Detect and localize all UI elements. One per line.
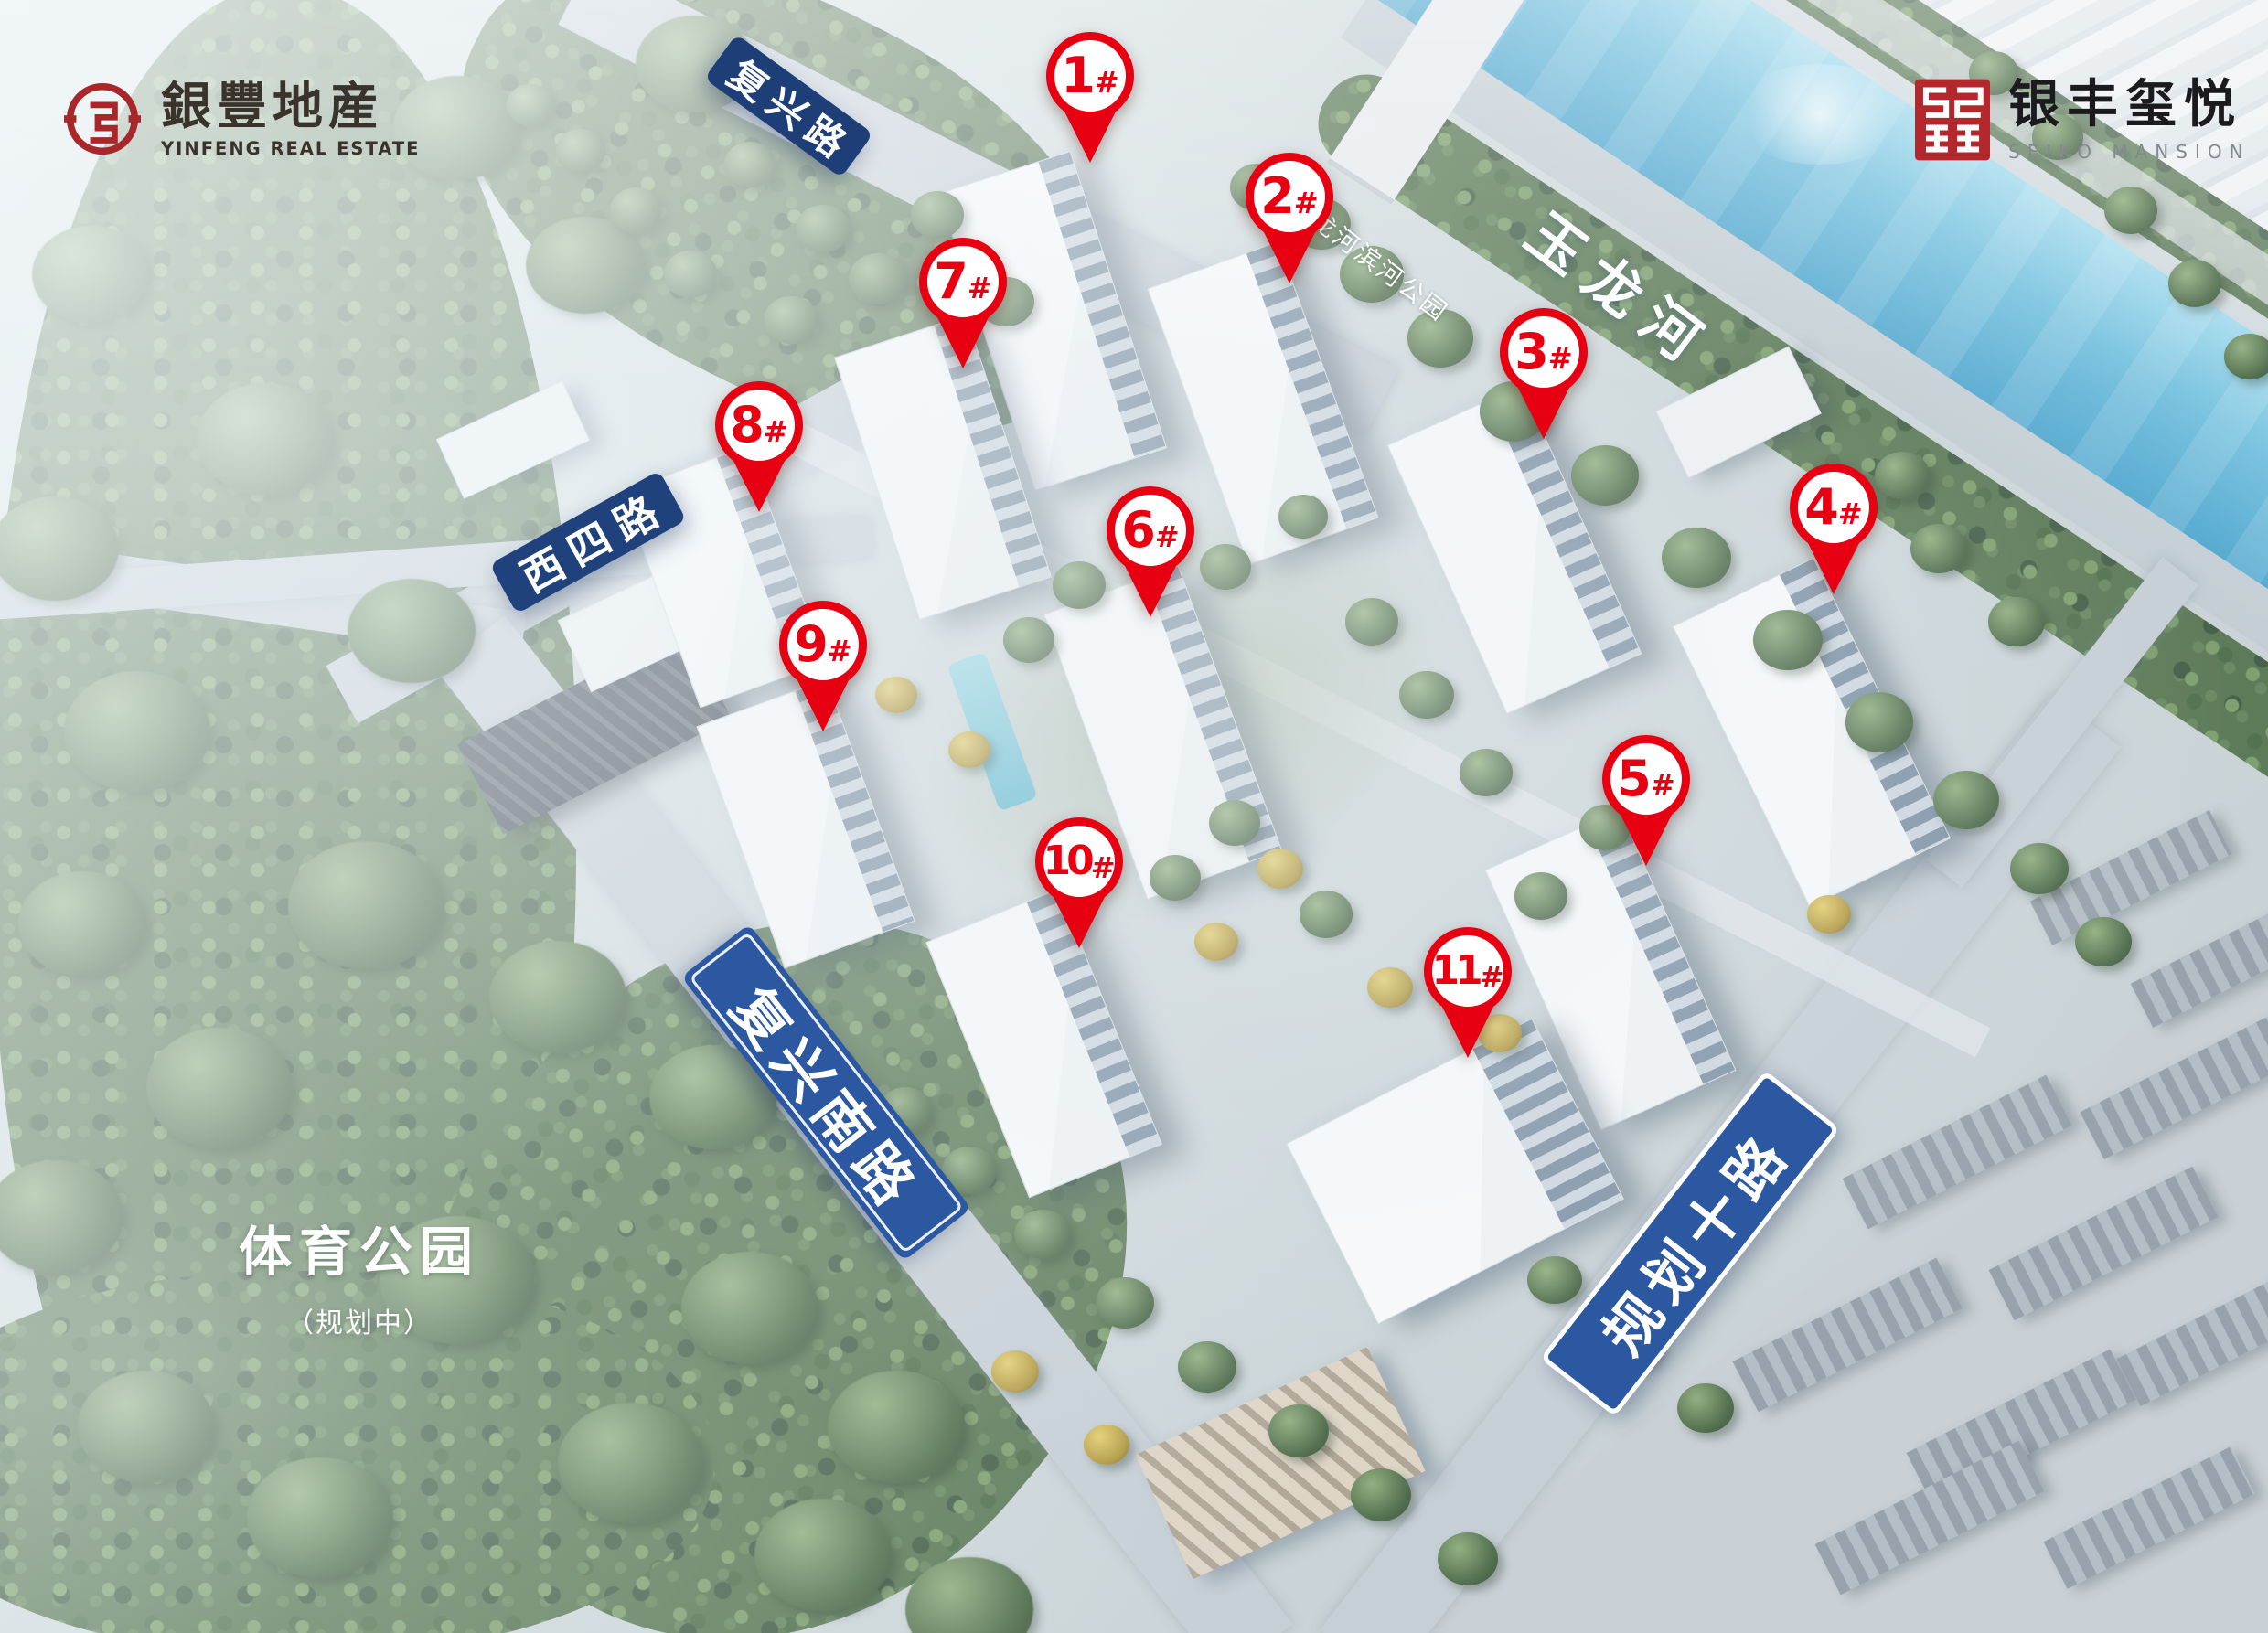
tree [1084, 1425, 1129, 1465]
tree [1053, 561, 1106, 608]
tree [875, 677, 917, 713]
tree [489, 941, 626, 1053]
tree [1014, 1210, 1071, 1260]
marker-hash: # [1155, 522, 1180, 551]
tree [1178, 1341, 1236, 1393]
tree [1438, 1532, 1498, 1585]
tree [64, 671, 210, 791]
sports-park-name: 体育公园 [227, 1209, 492, 1286]
location-pin-icon: 1# [1046, 32, 1134, 120]
tree [1096, 1277, 1154, 1329]
marker-hash: # [828, 636, 852, 666]
building-marker-8: 8# [715, 381, 803, 509]
location-pin-icon: 11# [1424, 927, 1512, 1015]
building-marker-1: 1# [1046, 32, 1134, 160]
tree [828, 1371, 965, 1483]
tree [1571, 445, 1639, 505]
sports-park-label: 体育公园 （规划中） [227, 1209, 492, 1340]
building-marker-11: 11# [1424, 927, 1512, 1055]
tree [664, 251, 717, 297]
marker-hash: # [1091, 853, 1116, 882]
location-pin-icon: 7# [919, 238, 1007, 326]
tree [1194, 923, 1238, 961]
location-pin-icon: 6# [1107, 486, 1194, 574]
marker-number: 3 [1514, 327, 1547, 377]
seiko-mansion-seal-icon [1915, 79, 1990, 161]
project-name-cn: 银丰玺悦 [2008, 79, 2251, 130]
tree [754, 1499, 892, 1611]
marker-number: 2 [1260, 172, 1293, 221]
marker-number: 9 [794, 620, 827, 669]
marker-number: 8 [730, 400, 763, 450]
tree [1278, 495, 1328, 539]
building-marker-3: 3# [1500, 308, 1588, 436]
tree [911, 191, 964, 238]
marker-hash: # [1651, 771, 1675, 800]
tree [1677, 1383, 1734, 1434]
tree [681, 1252, 818, 1364]
project-name-en: SEIKO MANSION [2008, 141, 2251, 163]
marker-hash: # [1548, 344, 1573, 373]
marker-number: 6 [1121, 506, 1154, 555]
tree [1257, 849, 1303, 889]
tree [849, 253, 907, 304]
building-marker-7: 7# [919, 238, 1007, 366]
tree [1460, 749, 1513, 795]
developer-name-en: YINFENG REAL ESTATE [161, 138, 420, 159]
tree [1875, 452, 1930, 500]
tree [610, 187, 661, 232]
tree [1150, 855, 1201, 900]
tree [1399, 671, 1454, 720]
tree [288, 841, 444, 968]
tree [32, 226, 151, 324]
project-logo-text: 银丰玺悦 SEIKO MANSION [2008, 79, 2251, 163]
tree [1345, 598, 1398, 645]
tree [1910, 524, 1967, 574]
tree [78, 1371, 215, 1483]
tree [197, 383, 334, 496]
tree [2104, 187, 2157, 233]
tree [1933, 771, 1999, 828]
tree [1003, 617, 1054, 662]
location-pin-icon: 3# [1500, 308, 1588, 396]
yinfeng-seal-icon [64, 80, 141, 157]
building-marker-9: 9# [779, 601, 867, 729]
tree [1367, 967, 1413, 1008]
tree [1807, 895, 1851, 934]
marker-number: 1 [1061, 51, 1094, 101]
pond [1733, 64, 1907, 165]
building-marker-2: 2# [1246, 153, 1333, 281]
building-marker-10: 10# [1035, 817, 1123, 945]
developer-logo: 銀豐地産 YINFENG REAL ESTATE [64, 80, 420, 159]
tree [1514, 872, 1567, 919]
marker-hash: # [1838, 499, 1863, 528]
tree [146, 1028, 293, 1147]
developer-name-cn: 銀豐地産 [161, 80, 420, 131]
marker-hash: # [764, 417, 788, 446]
tree [796, 205, 850, 253]
school-building [1135, 1347, 1425, 1579]
marker-number: 10 [1043, 841, 1089, 881]
location-pin-icon: 4# [1790, 464, 1878, 551]
tree [247, 1457, 393, 1577]
tree [1527, 1256, 1582, 1305]
tree [1209, 800, 1260, 845]
tree [991, 1350, 1039, 1393]
tree [2010, 843, 2069, 894]
tree [2075, 917, 2132, 967]
tree [348, 579, 476, 684]
tree [1662, 528, 1731, 589]
marker-hash: # [1095, 68, 1119, 97]
location-pin-icon: 5# [1602, 735, 1690, 823]
location-pin-icon: 10# [1035, 817, 1123, 905]
marker-number: 11 [1431, 951, 1478, 991]
marker-number: 7 [934, 257, 967, 306]
tree [1351, 1468, 1411, 1521]
building-marker-5: 5# [1602, 735, 1690, 863]
building-marker-4: 4# [1790, 464, 1878, 592]
tree [1845, 692, 1913, 752]
marker-hash: # [1294, 188, 1319, 218]
tree [1200, 544, 1251, 589]
tree [1988, 597, 2045, 647]
sports-park-status: （规划中） [227, 1300, 492, 1340]
tree [1268, 1404, 1329, 1457]
tree [558, 1403, 704, 1522]
developer-logo-text: 銀豐地産 YINFENG REAL ESTATE [161, 80, 420, 159]
location-pin-icon: 2# [1246, 153, 1333, 240]
tree [2168, 260, 2221, 306]
tree [1753, 610, 1823, 671]
site-plan-rendering: 复兴路 西四路 复兴南路 规划十路 玉龙河 玉龙河滨河公园 体育公园 （规划中）… [0, 0, 2268, 1633]
project-logo: 银丰玺悦 SEIKO MANSION [1915, 79, 2251, 163]
location-pin-icon: 9# [779, 601, 867, 688]
marker-hash: # [968, 273, 992, 303]
tree [724, 142, 776, 187]
location-pin-icon: 8# [715, 381, 803, 469]
building-marker-6: 6# [1107, 486, 1194, 614]
marker-number: 4 [1804, 483, 1837, 532]
marker-hash: # [1480, 963, 1504, 992]
tree [764, 296, 818, 345]
tree [1300, 891, 1353, 937]
marker-number: 5 [1617, 754, 1650, 804]
tree [507, 84, 554, 126]
tree [556, 129, 605, 173]
tree [18, 871, 146, 977]
